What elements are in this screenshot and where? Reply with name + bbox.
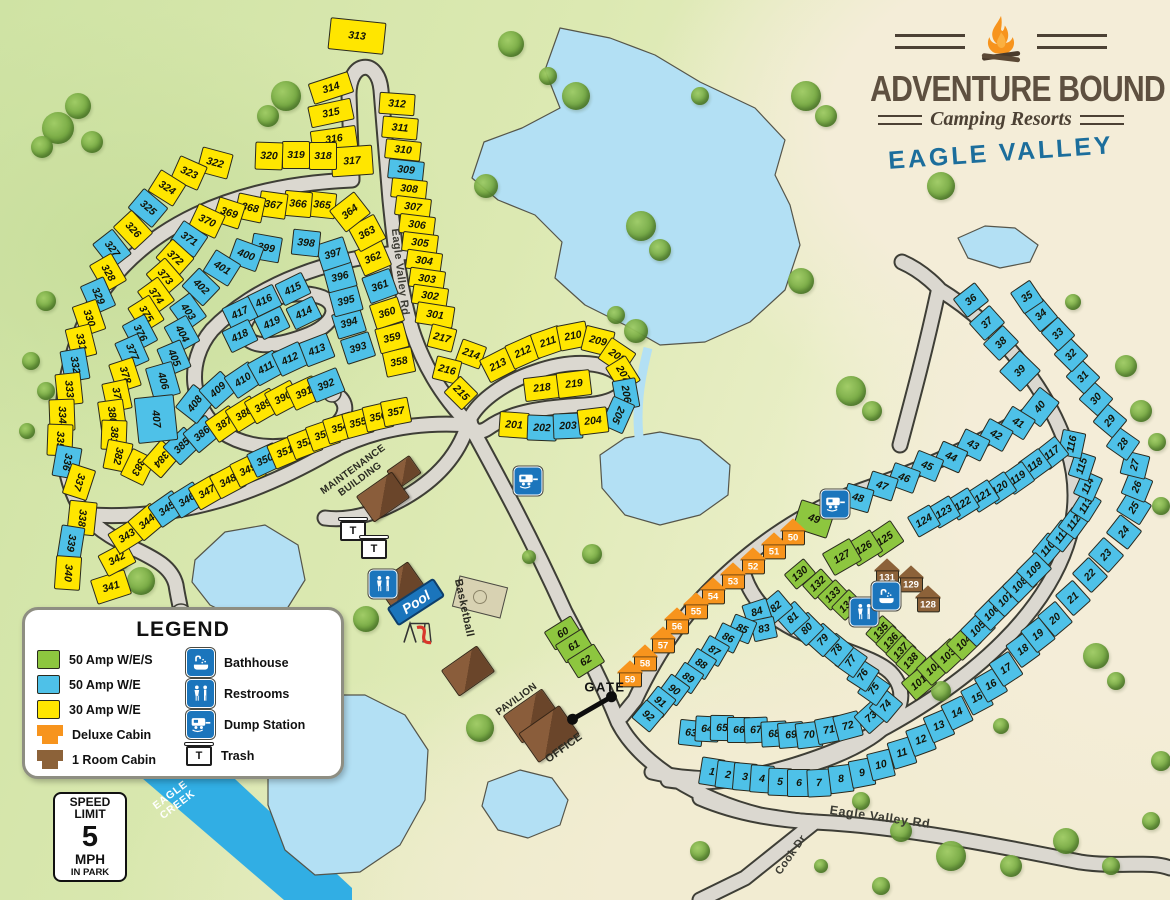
- dump-station-icon: [186, 710, 215, 739]
- cabin-roof-icon: [740, 547, 766, 559]
- cabin-roof-icon: [664, 607, 690, 619]
- restrooms-icon: [186, 679, 215, 708]
- tree: [626, 211, 656, 241]
- trash-icon: T: [361, 539, 387, 559]
- campground-map: 3133143153163173183193203123113103093083…: [0, 0, 1170, 900]
- tree: [691, 87, 709, 105]
- speed-limit-sign: SPEED LIMIT 5 MPH IN PARK: [53, 792, 127, 882]
- green-site-chip: [37, 650, 60, 669]
- tree: [1065, 294, 1081, 310]
- logo-subtitle: Camping Resorts: [930, 108, 1072, 131]
- trash-icon: T: [186, 746, 212, 766]
- tree: [19, 423, 35, 439]
- tree: [1151, 751, 1170, 771]
- tree: [862, 401, 882, 421]
- tree: [65, 93, 91, 119]
- pond-northeast: [958, 226, 1038, 268]
- campfire-icon: [975, 14, 1027, 69]
- site-219: 219: [556, 369, 593, 399]
- tree: [1115, 355, 1137, 377]
- dump-station-icon: [514, 467, 543, 496]
- site-357: 357: [380, 397, 412, 428]
- tree: [257, 105, 279, 127]
- cabin-roof-icon: [720, 562, 746, 574]
- label-gate: GATE: [584, 680, 625, 695]
- tree: [353, 606, 379, 632]
- tree: [1000, 855, 1022, 877]
- tree: [562, 82, 590, 110]
- tree: [788, 268, 814, 294]
- cabin-roof-icon: [898, 565, 924, 577]
- cabin-roof-icon: [874, 558, 900, 570]
- cabin-roof-icon: [632, 644, 658, 656]
- tree: [1107, 672, 1125, 690]
- room-cabin-icon: [37, 750, 63, 769]
- tree: [522, 550, 536, 564]
- tree: [498, 31, 524, 57]
- pond-central: [600, 432, 730, 525]
- speed-number: 5: [82, 822, 98, 852]
- site-340: 340: [54, 555, 82, 591]
- site-204: 204: [577, 406, 610, 435]
- tree: [22, 352, 40, 370]
- blue-site-chip: [37, 675, 60, 694]
- tree: [31, 136, 53, 158]
- cabin-roof-icon: [761, 532, 787, 544]
- legend-item-restrooms: Restrooms: [186, 678, 329, 709]
- site-201: 201: [498, 411, 530, 439]
- cabin-roof-icon: [617, 660, 643, 672]
- speed-line3: MPH: [75, 853, 105, 867]
- lake-channel: [638, 348, 648, 445]
- pond-office: [482, 770, 568, 838]
- site-398: 398: [291, 229, 322, 258]
- tree: [36, 291, 56, 311]
- tree: [37, 382, 55, 400]
- tree: [993, 718, 1009, 734]
- legend-item-50amp-wes: 50 Amp W/E/S: [37, 647, 180, 672]
- tree: [836, 376, 866, 406]
- legend-item-trash: T Trash: [186, 740, 329, 771]
- tree: [1053, 828, 1079, 854]
- tree: [927, 172, 955, 200]
- logo-title: ADVENTURE BOUND: [870, 71, 1165, 107]
- logo-sub-rule-right: [1080, 115, 1124, 125]
- cabin-roof-icon: [683, 592, 709, 604]
- tree: [466, 714, 494, 742]
- main-lake: [472, 28, 800, 345]
- site-311: 311: [381, 115, 419, 140]
- room-cabin-128: 128: [915, 585, 941, 612]
- dump-station-icon: [821, 490, 850, 519]
- tree: [474, 174, 498, 198]
- tree: [872, 877, 890, 895]
- tree: [936, 841, 966, 871]
- deluxe-cabin-icon: [37, 725, 63, 744]
- legend-panel: LEGEND 50 Amp W/E/S 50 Amp W/E 30 Amp W/…: [22, 607, 344, 779]
- tree: [791, 81, 821, 111]
- bathhouse-icon: [186, 648, 215, 677]
- speed-line2: LIMIT: [74, 808, 105, 821]
- tree: [1130, 400, 1152, 422]
- cabin-roof-icon: [780, 518, 806, 530]
- tree: [1083, 643, 1109, 669]
- tree: [607, 306, 625, 324]
- restrooms-icon: [369, 570, 398, 599]
- legend-title: LEGEND: [37, 618, 329, 642]
- site-319: 319: [282, 141, 310, 169]
- tree: [1142, 812, 1160, 830]
- legend-item-dump-station: Dump Station: [186, 709, 329, 740]
- speed-line4: IN PARK: [71, 868, 109, 878]
- logo-rule-right: [1037, 34, 1107, 49]
- tree: [815, 105, 837, 127]
- park-logo: ADVENTURE BOUND Camping Resorts EAGLE VA…: [842, 14, 1160, 168]
- tree: [1102, 857, 1120, 875]
- tree: [624, 319, 648, 343]
- tree: [1148, 433, 1166, 451]
- site-312: 312: [378, 92, 415, 116]
- legend-item-deluxe-cabin: Deluxe Cabin: [37, 722, 180, 747]
- yellow-site-chip: [37, 700, 60, 719]
- tree: [649, 239, 671, 261]
- bathhouse-icon: [872, 582, 901, 611]
- tree: [690, 841, 710, 861]
- logo-rule-left: [895, 34, 965, 49]
- site-320: 320: [255, 142, 284, 171]
- tree: [582, 544, 602, 564]
- tree: [81, 131, 103, 153]
- site-313: 313: [327, 17, 386, 55]
- cabin-roof-icon: [650, 626, 676, 638]
- site-407: 407: [134, 394, 179, 444]
- legend-item-room-cabin: 1 Room Cabin: [37, 747, 180, 772]
- legend-item-50amp-we: 50 Amp W/E: [37, 672, 180, 697]
- tree: [1152, 497, 1170, 515]
- cabin-roof-icon: [915, 585, 941, 597]
- legend-item-bathhouse: Bathhouse: [186, 647, 329, 678]
- site-318: 318: [309, 142, 337, 170]
- tree: [814, 859, 828, 873]
- playground-icon: [402, 617, 438, 650]
- logo-sub-rule-left: [878, 115, 922, 125]
- tree: [539, 67, 557, 85]
- legend-item-30amp-we: 30 Amp W/E: [37, 697, 180, 722]
- cabin-roof-icon: [700, 577, 726, 589]
- tree: [271, 81, 301, 111]
